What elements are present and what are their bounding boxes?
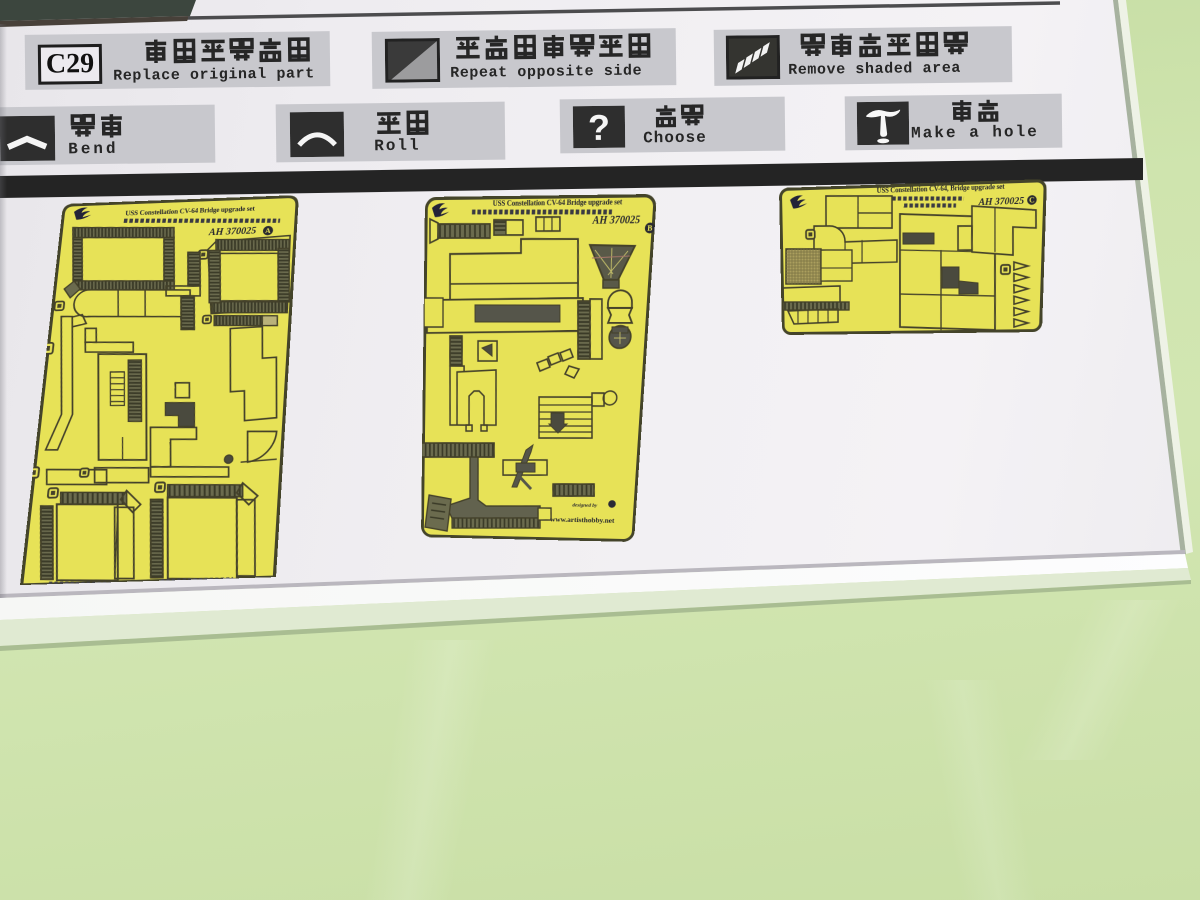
svg-text:AH 370025: AH 370025 — [207, 227, 256, 239]
svg-text:?: ? — [588, 107, 610, 148]
svg-text:AH 370025: AH 370025 — [591, 215, 640, 227]
svg-text:AH 370025: AH 370025 — [977, 195, 1024, 207]
svg-text:C: C — [1029, 196, 1035, 205]
svg-text:designed by: designed by — [572, 503, 597, 509]
svg-text:www.artisthobby.net: www.artisthobby.net — [550, 515, 615, 524]
svg-text:USS Constellation CV-64 Bridge: USS Constellation CV-64 Bridge upgrade s… — [493, 198, 623, 208]
svg-text:B: B — [647, 223, 653, 232]
